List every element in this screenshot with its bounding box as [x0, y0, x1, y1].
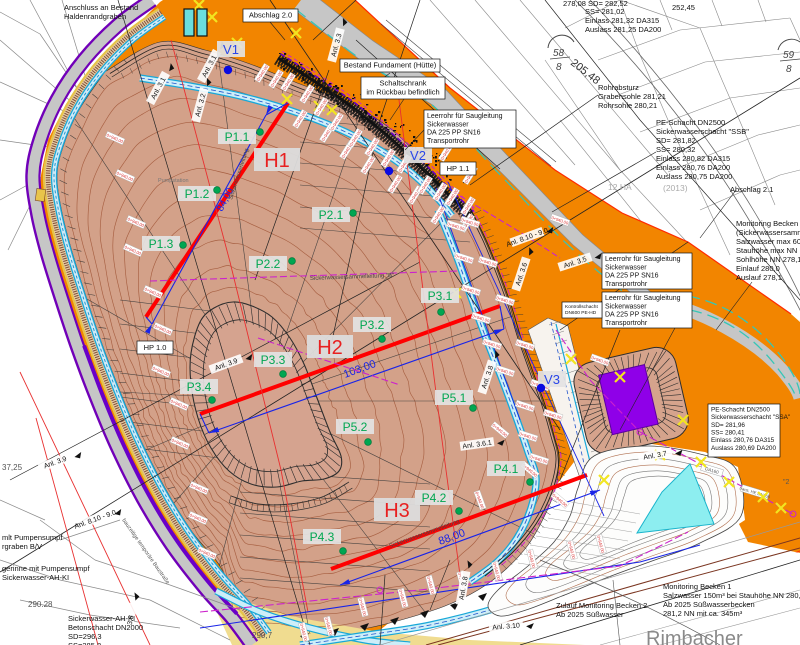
- svg-text:P4.2: P4.2: [422, 491, 447, 505]
- svg-text:P1.2: P1.2: [185, 187, 210, 201]
- svg-text:Ab 2025 Süßwasser: Ab 2025 Süßwasser: [556, 610, 624, 619]
- svg-text:SS= 280,32: SS= 280,32: [656, 145, 695, 154]
- svg-text:V2: V2: [410, 148, 426, 163]
- svg-text:SD= 281,82: SD= 281,82: [656, 136, 696, 145]
- svg-text:Betonschacht DN2000: Betonschacht DN2000: [68, 623, 143, 632]
- svg-text:SS=285,8: SS=285,8: [68, 641, 101, 645]
- svg-text:Sickerwasser-AH-KI: Sickerwasser-AH-KI: [2, 573, 69, 582]
- svg-text:P3.2: P3.2: [360, 318, 385, 332]
- svg-text:P4.3: P4.3: [310, 530, 335, 544]
- svg-text:(Sickerwassersamm: (Sickerwassersamm: [736, 228, 800, 237]
- svg-text:Einlass 280,82 DA315: Einlass 280,82 DA315: [656, 154, 730, 163]
- svg-text:gerinne mit Pumpensumpf: gerinne mit Pumpensumpf: [2, 564, 90, 573]
- svg-text:Auslauf 278,1: Auslauf 278,1: [736, 273, 782, 282]
- svg-text:Sickerwasser-AH-KI: Sickerwasser-AH-KI: [68, 614, 135, 623]
- svg-text:Kontrollschacht: Kontrollschacht: [565, 304, 598, 310]
- svg-text:Transportrohr: Transportrohr: [427, 138, 470, 145]
- svg-text:Pumpstation: Pumpstation: [158, 178, 189, 184]
- svg-text:Einlass 281,32 DA315: Einlass 281,32 DA315: [585, 16, 659, 25]
- svg-text:Rohrabsturz: Rohrabsturz: [598, 83, 639, 92]
- svg-text:Abschlag 2.0: Abschlag 2.0: [249, 11, 292, 20]
- svg-text:"2: "2: [783, 479, 789, 486]
- svg-text:Sickerwasser: Sickerwasser: [605, 303, 647, 310]
- svg-text:P1.3: P1.3: [149, 237, 174, 251]
- svg-text:mlt Pumpensumpf: mlt Pumpensumpf: [2, 533, 63, 542]
- svg-text:P4.1: P4.1: [494, 462, 519, 476]
- svg-text:Transportrohr: Transportrohr: [605, 320, 648, 327]
- svg-text:P5.2: P5.2: [343, 420, 368, 434]
- svg-text:Bestand Fundament (Hütte): Bestand Fundament (Hütte): [344, 61, 437, 70]
- svg-text:8: 8: [556, 62, 562, 73]
- svg-text:Schaltschrank: Schaltschrank: [379, 79, 426, 88]
- svg-text:P2.2: P2.2: [256, 257, 281, 271]
- svg-text:Sohlhöhe NN 278,1: Sohlhöhe NN 278,1: [736, 255, 800, 264]
- svg-text:P5.1: P5.1: [442, 391, 467, 405]
- svg-text:(2013): (2013): [663, 183, 688, 193]
- svg-text:Einlass 280,76 DA200: Einlass 280,76 DA200: [656, 163, 730, 172]
- svg-text:HP 1.0: HP 1.0: [144, 343, 167, 352]
- svg-text:Sickerwasserschacht "SSB": Sickerwasserschacht "SSB": [656, 127, 749, 136]
- svg-text:37,25: 37,25: [2, 463, 23, 472]
- svg-text:Leerrohr für Saugleitung: Leerrohr für Saugleitung: [605, 256, 681, 263]
- svg-text:Salzwasser 150m³ bei Stauhöhe: Salzwasser 150m³ bei Stauhöhe NN 280,: [663, 591, 800, 600]
- svg-text:Einlass 280,76 DA315: Einlass 280,76 DA315: [711, 437, 775, 444]
- svg-text:P1.1: P1.1: [225, 130, 250, 144]
- svg-text:281,2 NN mit ca. 345m³: 281,2 NN mit ca. 345m³: [663, 609, 743, 618]
- svg-text:HP 1.1: HP 1.1: [447, 164, 470, 173]
- svg-text:DA 225 PP SN16: DA 225 PP SN16: [605, 273, 659, 280]
- svg-text:H1: H1: [264, 150, 290, 172]
- svg-text:12 HA: 12 HA: [608, 182, 632, 192]
- svg-text:P3.4: P3.4: [187, 380, 212, 394]
- svg-text:Monitoring Becken 1: Monitoring Becken 1: [663, 582, 731, 591]
- svg-text:290,7: 290,7: [252, 631, 273, 640]
- svg-text:P2.1: P2.1: [319, 208, 344, 222]
- svg-text:Abschlag 2.1: Abschlag 2.1: [730, 185, 773, 194]
- svg-text:H3: H3: [384, 500, 410, 522]
- svg-text:DA 225 PP SN16: DA 225 PP SN16: [605, 312, 659, 319]
- svg-text:Zulauf Monitoring Becken 2: Zulauf Monitoring Becken 2: [556, 601, 647, 610]
- svg-text:Auslass 281,25 DA200: Auslass 281,25 DA200: [585, 25, 661, 34]
- svg-text:252,45: 252,45: [672, 3, 695, 12]
- svg-text:H2: H2: [317, 337, 343, 359]
- svg-text:rgraben B/V: rgraben B/V: [2, 542, 42, 551]
- svg-text:im Rückbau befindlich: im Rückbau befindlich: [366, 87, 439, 96]
- svg-text:P3.1: P3.1: [428, 289, 453, 303]
- svg-text:Transportrohr: Transportrohr: [605, 281, 648, 288]
- svg-text:Auslass 280,69 DA200: Auslass 280,69 DA200: [711, 445, 776, 452]
- svg-text:Sickerwasser: Sickerwasser: [427, 121, 469, 128]
- svg-text:Stauhöhe max NN: Stauhöhe max NN: [736, 246, 797, 255]
- svg-text:DA 225 PP SN16: DA 225 PP SN16: [427, 130, 481, 137]
- svg-text:Leerrohr für Saugleitung: Leerrohr für Saugleitung: [605, 295, 681, 302]
- svg-text:SD= 281,96: SD= 281,96: [711, 422, 745, 429]
- svg-text:Sickerwasserschacht "SSA": Sickerwasserschacht "SSA": [711, 414, 790, 421]
- svg-text:SS= 280,41: SS= 280,41: [711, 430, 745, 437]
- svg-text:V1: V1: [223, 42, 239, 57]
- svg-text:Ab 2025 Süßwasserbecken: Ab 2025 Süßwasserbecken: [663, 600, 755, 609]
- svg-text:Auslass 280,75 DA200: Auslass 280,75 DA200: [656, 172, 732, 181]
- svg-text:Haldenrandgraben: Haldenrandgraben: [64, 12, 126, 21]
- svg-text:SS= 281,02: SS= 281,02: [585, 7, 624, 16]
- svg-text:Einlauf 280,0: Einlauf 280,0: [736, 264, 780, 273]
- svg-text:DN600 PE-HD: DN600 PE-HD: [565, 310, 597, 316]
- svg-text:P3.3: P3.3: [261, 353, 286, 367]
- svg-text:Monitoring Becken 2: Monitoring Becken 2: [736, 219, 800, 228]
- svg-text:Anschluss an Bestand: Anschluss an Bestand: [64, 3, 138, 12]
- svg-text:Grabensohle 281,21: Grabensohle 281,21: [598, 92, 666, 101]
- svg-text:290.28: 290.28: [28, 600, 53, 609]
- svg-text:Leerrohr für Saugleitung: Leerrohr für Saugleitung: [427, 113, 503, 120]
- svg-text:PE-Schacht DN2500: PE-Schacht DN2500: [711, 406, 770, 413]
- svg-text:Rohrsohle 280,21: Rohrsohle 280,21: [598, 101, 657, 110]
- svg-text:V3: V3: [544, 372, 560, 387]
- svg-text:SD=296,3: SD=296,3: [68, 632, 102, 641]
- svg-text:Rimbacher: Rimbacher: [646, 628, 743, 645]
- svg-text:Sickerwasser: Sickerwasser: [605, 264, 647, 271]
- svg-text:Salzwasser max 60: Salzwasser max 60: [736, 237, 800, 246]
- svg-text:8: 8: [786, 64, 792, 75]
- svg-text:PE-Schacht DN2500: PE-Schacht DN2500: [656, 118, 725, 127]
